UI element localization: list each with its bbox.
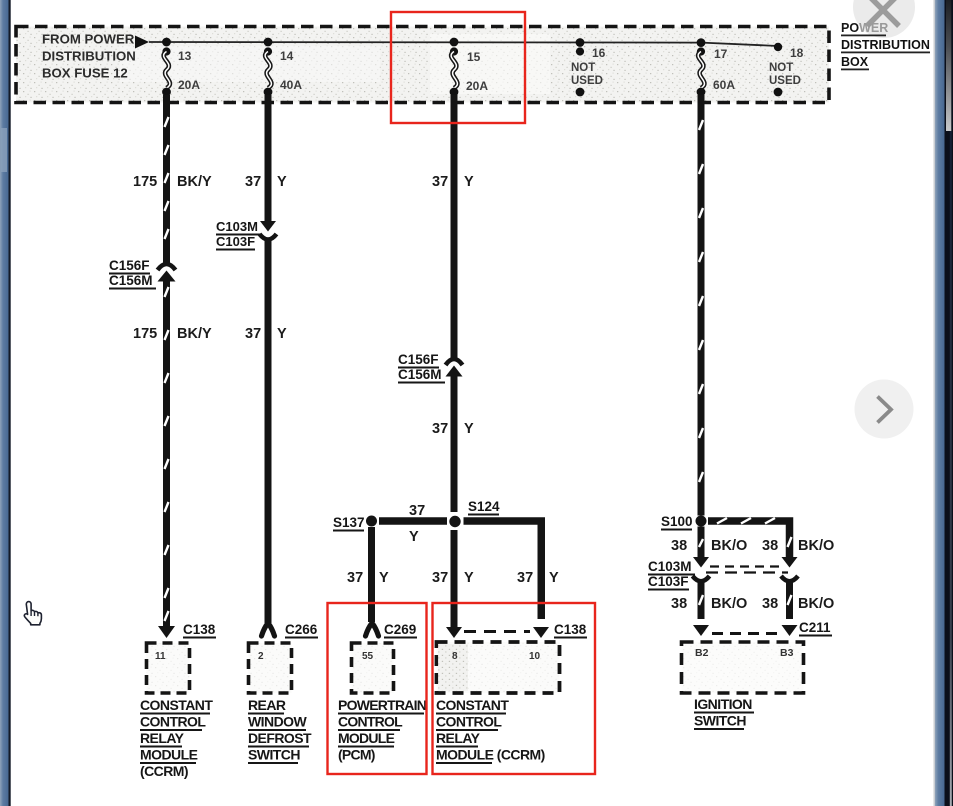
svg-text:CONSTANT: CONSTANT: [436, 697, 509, 713]
svg-text:WINDOW: WINDOW: [248, 714, 307, 730]
svg-text:37: 37: [347, 570, 363, 586]
svg-text:Y: Y: [464, 570, 474, 586]
svg-text:11: 11: [155, 651, 166, 662]
svg-text:CONSTANT: CONSTANT: [140, 697, 213, 713]
svg-text:Y: Y: [464, 421, 474, 437]
svg-text:NOT: NOT: [769, 62, 793, 74]
svg-text:USED: USED: [769, 75, 801, 87]
svg-text:13: 13: [178, 49, 192, 63]
svg-text:C156F: C156F: [398, 352, 439, 367]
svg-text:CONTROL: CONTROL: [140, 714, 206, 730]
svg-text:S100: S100: [661, 514, 693, 529]
svg-text:POWER: POWER: [841, 21, 888, 35]
svg-text:38: 38: [762, 538, 778, 554]
svg-text:SWITCH: SWITCH: [694, 713, 746, 729]
svg-text:DEFROST: DEFROST: [248, 730, 312, 746]
svg-text:RELAY: RELAY: [436, 730, 481, 746]
svg-text:RELAY: RELAY: [140, 730, 185, 746]
svg-text:C156M: C156M: [398, 367, 442, 382]
svg-text:Y: Y: [549, 570, 559, 586]
svg-text:B3: B3: [780, 647, 794, 659]
svg-text:C103M: C103M: [216, 219, 258, 234]
svg-text:20A: 20A: [466, 79, 488, 93]
svg-text:8: 8: [452, 651, 458, 662]
svg-text:C156M: C156M: [109, 273, 153, 288]
svg-text:BOX: BOX: [841, 55, 869, 69]
svg-text:BK/Y: BK/Y: [177, 326, 212, 342]
svg-text:16: 16: [592, 46, 606, 60]
svg-text:USED: USED: [571, 75, 603, 87]
svg-text:Y: Y: [277, 326, 287, 342]
svg-text:37: 37: [432, 421, 448, 437]
svg-text:38: 38: [671, 538, 687, 554]
svg-text:CONTROL: CONTROL: [338, 714, 403, 730]
svg-text:2: 2: [258, 651, 264, 662]
svg-text:Y: Y: [409, 529, 419, 545]
svg-text:55: 55: [362, 651, 374, 662]
svg-text:175: 175: [133, 174, 157, 190]
svg-text:37: 37: [432, 570, 448, 586]
svg-text:MODULE: MODULE: [338, 730, 395, 746]
svg-text:C156F: C156F: [109, 258, 150, 273]
svg-text:BK/Y: BK/Y: [177, 174, 212, 190]
svg-text:37: 37: [245, 326, 261, 342]
svg-text:(CCRM): (CCRM): [140, 763, 188, 779]
svg-text:REAR: REAR: [248, 697, 286, 713]
svg-text:DISTRIBUTION: DISTRIBUTION: [841, 38, 930, 52]
svg-text:37: 37: [245, 174, 261, 190]
svg-text:C138: C138: [183, 622, 216, 637]
svg-text:40A: 40A: [280, 78, 302, 92]
svg-text:(PCM): (PCM): [338, 747, 375, 763]
svg-text:15: 15: [467, 50, 481, 64]
svg-text:MODULE: MODULE: [140, 747, 198, 763]
svg-text:SWITCH: SWITCH: [248, 747, 300, 763]
svg-text:S137: S137: [333, 515, 365, 530]
svg-text:BOX FUSE 12: BOX FUSE 12: [42, 66, 128, 81]
svg-text:10: 10: [529, 651, 541, 662]
svg-text:B2: B2: [695, 647, 709, 659]
svg-text:37: 37: [409, 503, 425, 519]
svg-text:BK/O: BK/O: [798, 538, 834, 554]
svg-text:DISTRIBUTION: DISTRIBUTION: [42, 49, 136, 64]
svg-text:C138: C138: [554, 622, 587, 637]
svg-text:POWERTRAIN: POWERTRAIN: [338, 697, 427, 713]
svg-text:CONTROL: CONTROL: [436, 714, 502, 730]
svg-text:BK/O: BK/O: [798, 596, 834, 612]
svg-text:175: 175: [133, 326, 157, 342]
svg-text:C103F: C103F: [648, 574, 689, 589]
svg-text:60A: 60A: [713, 78, 735, 92]
svg-text:FROM POWER: FROM POWER: [42, 32, 135, 47]
svg-text:C211: C211: [799, 620, 831, 635]
svg-text:MODULE (CCRM): MODULE (CCRM): [436, 747, 545, 763]
svg-text:S124: S124: [468, 499, 500, 514]
svg-text:Y: Y: [277, 174, 287, 190]
svg-text:37: 37: [517, 570, 533, 586]
svg-text:Y: Y: [464, 174, 474, 190]
svg-text:C266: C266: [285, 622, 318, 637]
svg-text:37: 37: [432, 174, 448, 190]
svg-text:C103M: C103M: [648, 559, 692, 574]
svg-text:BK/O: BK/O: [711, 538, 747, 554]
svg-text:20A: 20A: [178, 78, 200, 92]
svg-text:14: 14: [280, 49, 294, 63]
svg-text:18: 18: [790, 46, 804, 60]
svg-text:IGNITION: IGNITION: [694, 696, 752, 712]
svg-text:NOT: NOT: [571, 62, 595, 74]
svg-text:BK/O: BK/O: [711, 596, 747, 612]
svg-text:38: 38: [671, 596, 687, 612]
svg-text:38: 38: [762, 596, 778, 612]
svg-text:Y: Y: [379, 570, 389, 586]
svg-text:C269: C269: [384, 622, 416, 637]
svg-text:17: 17: [714, 47, 728, 61]
svg-text:C103F: C103F: [216, 234, 255, 249]
